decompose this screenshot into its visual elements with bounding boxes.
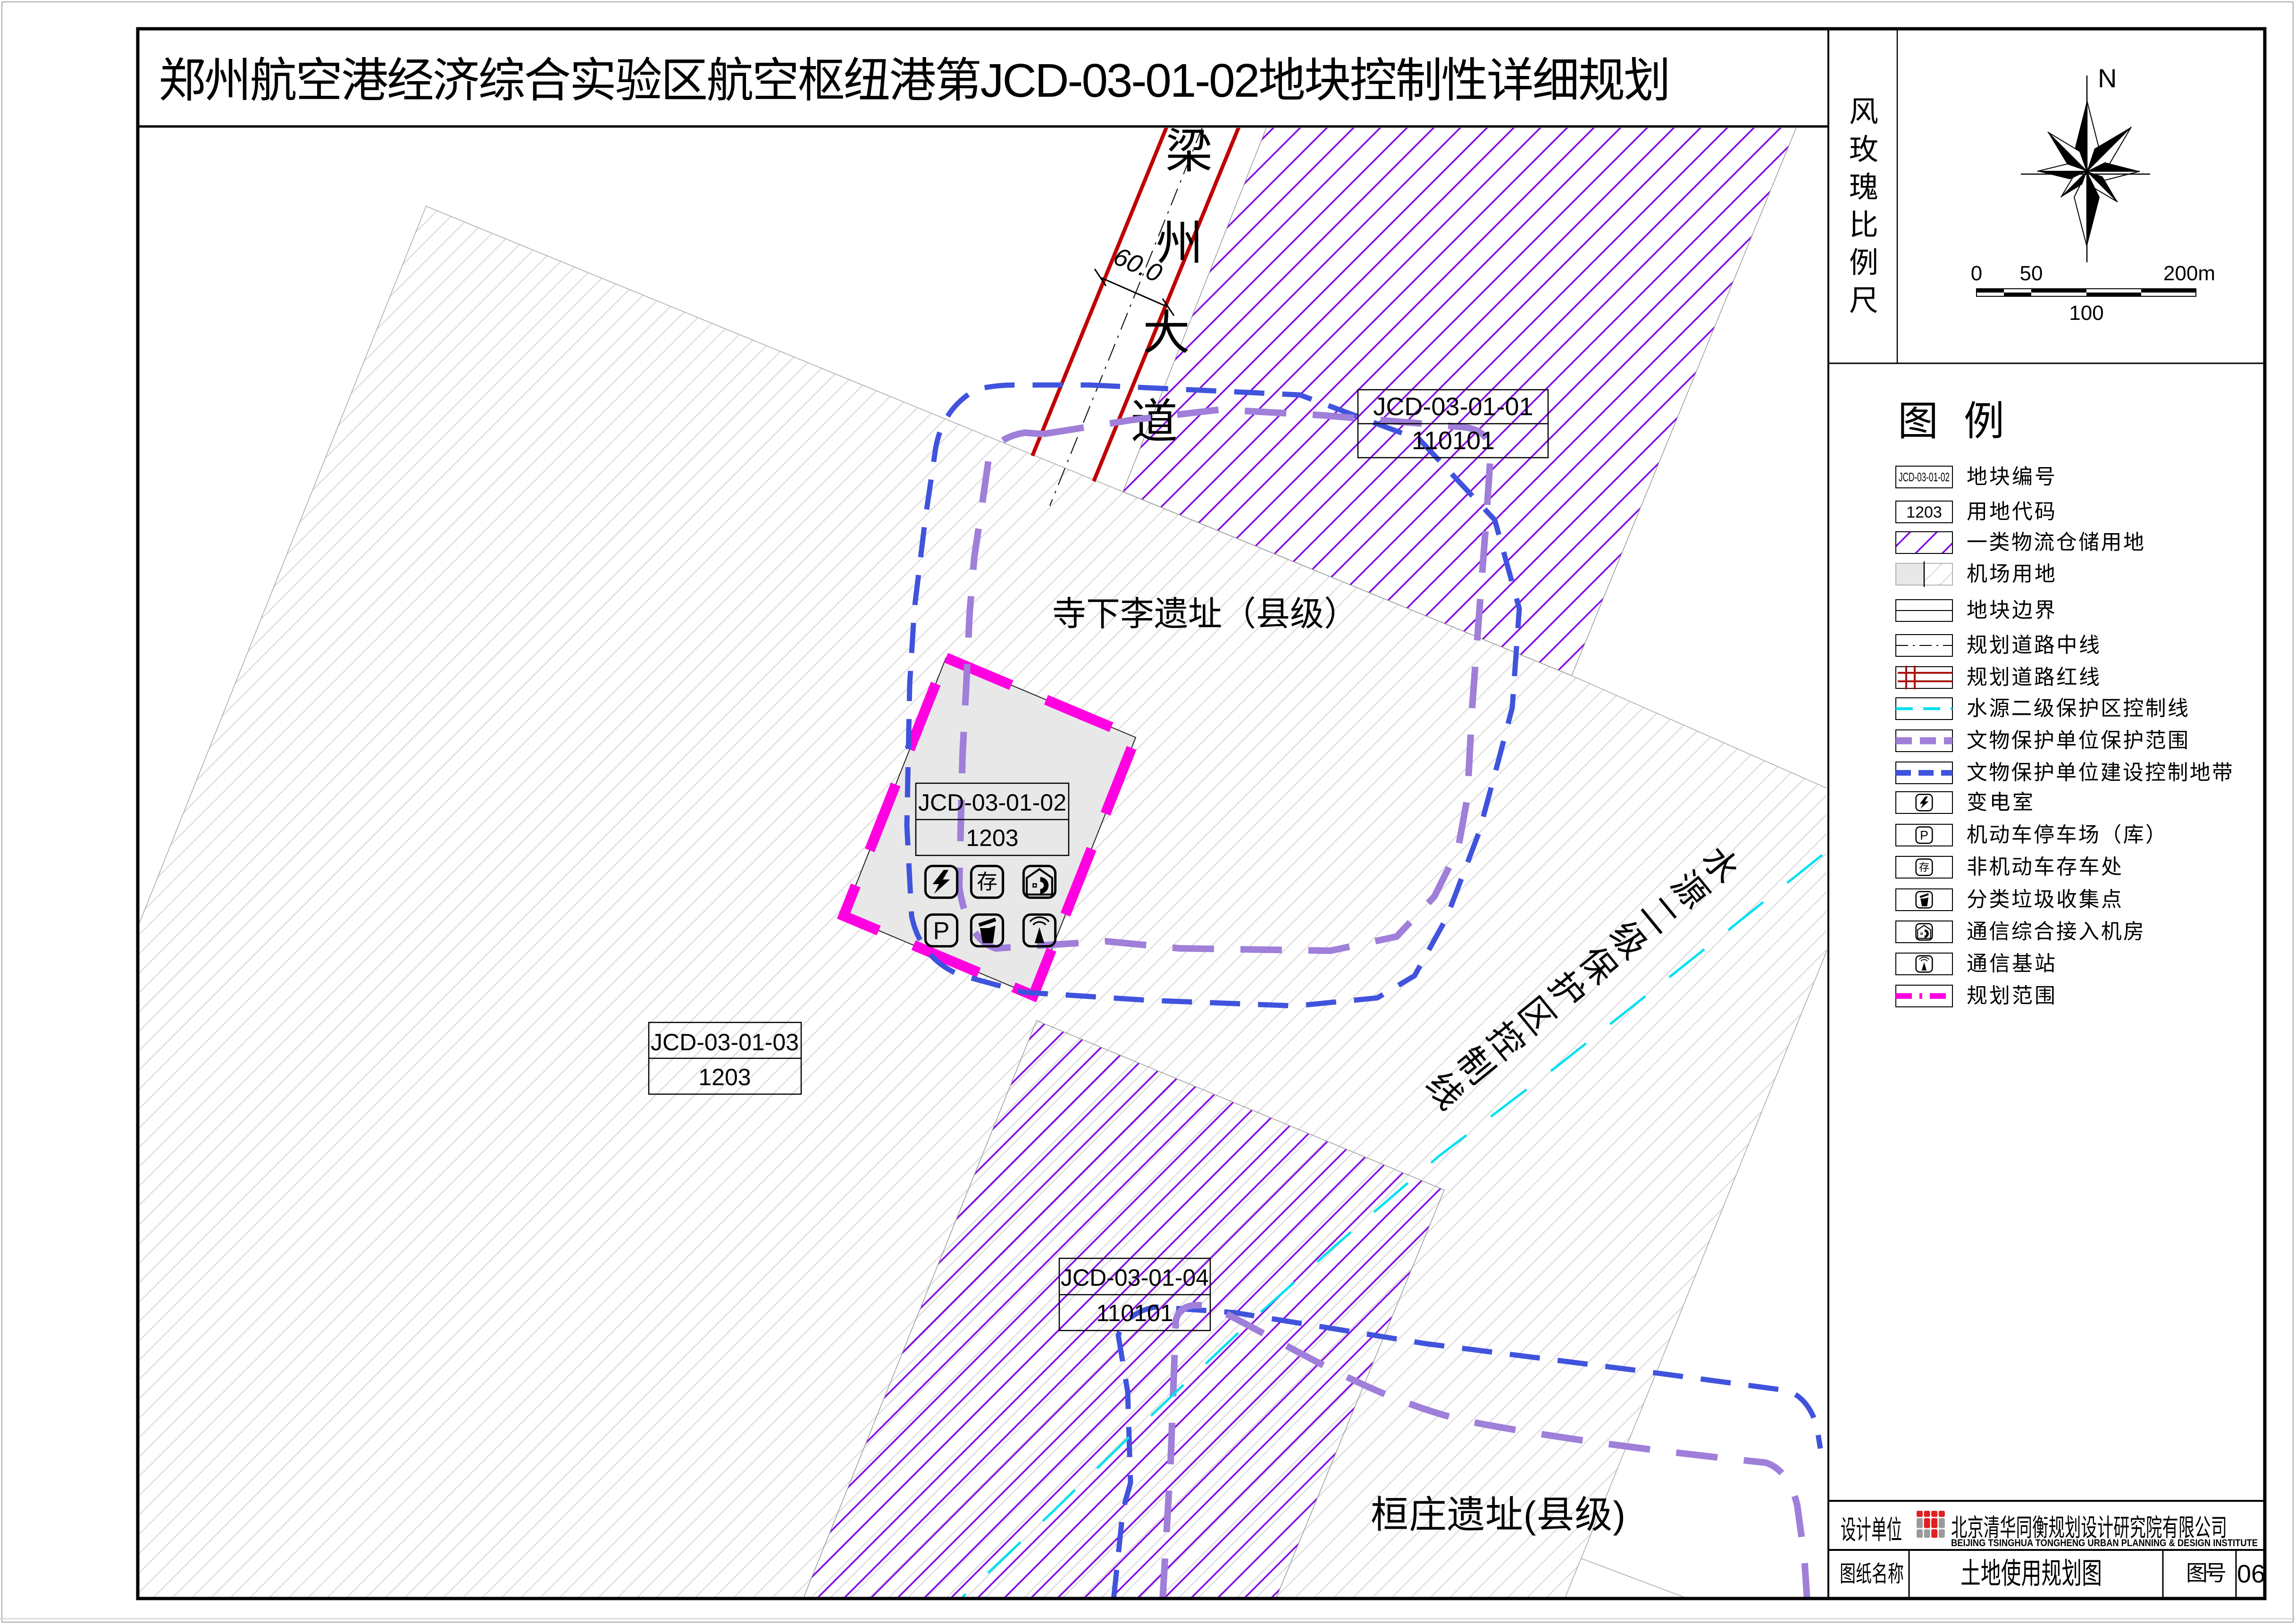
svg-text:200m: 200m: [2163, 262, 2215, 285]
svg-text:变电室: 变电室: [1967, 791, 2033, 814]
svg-text:风: 风: [1849, 96, 1878, 128]
svg-text:用地代码: 用地代码: [1967, 500, 2055, 523]
svg-text:110101: 110101: [1096, 1300, 1173, 1326]
svg-text:JCD-03-01-01: JCD-03-01-01: [1373, 393, 1533, 421]
svg-text:图号: 图号: [2186, 1561, 2227, 1585]
svg-text:桓庄遗址(县级): 桓庄遗址(县级): [1371, 1494, 1625, 1536]
svg-text:JCD-03-01-02: JCD-03-01-02: [918, 789, 1066, 816]
svg-text:规划道路红线: 规划道路红线: [1967, 666, 2100, 689]
svg-text:郑州航空港经济综合实验区航空枢纽港第JCD-03-01-02: 郑州航空港经济综合实验区航空枢纽港第JCD-03-01-02地块控制性详细规划: [159, 54, 1671, 107]
svg-text:地块边界: 地块边界: [1967, 599, 2055, 622]
svg-text:机场用地: 机场用地: [1967, 562, 2055, 586]
svg-text:分类垃圾收集点: 分类垃圾收集点: [1967, 888, 2122, 911]
svg-text:50: 50: [2020, 262, 2043, 285]
svg-text:水源二级保护区控制线: 水源二级保护区控制线: [1967, 697, 2188, 720]
svg-text:通信基站: 通信基站: [1967, 952, 2055, 975]
svg-text:例: 例: [1849, 247, 1878, 279]
svg-text:JCD-03-01-03: JCD-03-01-03: [651, 1029, 799, 1055]
svg-text:110101: 110101: [1412, 427, 1495, 455]
svg-text:州: 州: [1156, 217, 1203, 270]
svg-text:文物保护单位保护范围: 文物保护单位保护范围: [1967, 729, 2188, 752]
svg-text:1203: 1203: [698, 1064, 751, 1090]
svg-text:土地使用规划图: 土地使用规划图: [1960, 1557, 2102, 1590]
svg-text:1203: 1203: [966, 825, 1018, 851]
svg-text:设计单位: 设计单位: [1841, 1515, 1902, 1545]
svg-text:梁: 梁: [1165, 125, 1213, 178]
svg-text:一类物流仓储用地: 一类物流仓储用地: [1967, 531, 2144, 554]
svg-text:机动车停车场（库）: 机动车停车场（库）: [1967, 823, 2166, 846]
svg-text:图例: 图例: [1898, 399, 2004, 444]
svg-text:JCD-03-01-04: JCD-03-01-04: [1061, 1264, 1209, 1291]
svg-text:JCD-03-01-02: JCD-03-01-02: [1899, 470, 1950, 484]
svg-text:BEIJING TSINGHUA TONGHENG URBA: BEIJING TSINGHUA TONGHENG URBAN PLANNING…: [1951, 1538, 2258, 1549]
svg-text:非机动车存车处: 非机动车存车处: [1967, 855, 2122, 879]
svg-text:规划道路中线: 规划道路中线: [1967, 634, 2100, 657]
svg-text:比: 比: [1849, 209, 1878, 242]
svg-text:规划范围: 规划范围: [1967, 984, 2055, 1007]
svg-text:通信综合接入机房: 通信综合接入机房: [1967, 920, 2144, 943]
svg-text:玫: 玫: [1849, 134, 1878, 166]
svg-text:瑰: 瑰: [1849, 171, 1878, 204]
svg-text:寺下李遗址（县级）: 寺下李遗址（县级）: [1052, 595, 1358, 633]
svg-text:图纸名称: 图纸名称: [1840, 1562, 1904, 1587]
svg-text:100: 100: [2069, 301, 2103, 325]
svg-text:N: N: [2098, 63, 2117, 93]
svg-text:大: 大: [1143, 307, 1190, 360]
svg-text:尺: 尺: [1849, 285, 1878, 317]
svg-text:1203: 1203: [1906, 503, 1942, 521]
svg-text:地块编号: 地块编号: [1967, 465, 2055, 488]
svg-text:0: 0: [1971, 262, 1982, 285]
svg-text:文物保护单位建设控制地带: 文物保护单位建设控制地带: [1967, 761, 2233, 784]
svg-text:06: 06: [2237, 1560, 2265, 1588]
